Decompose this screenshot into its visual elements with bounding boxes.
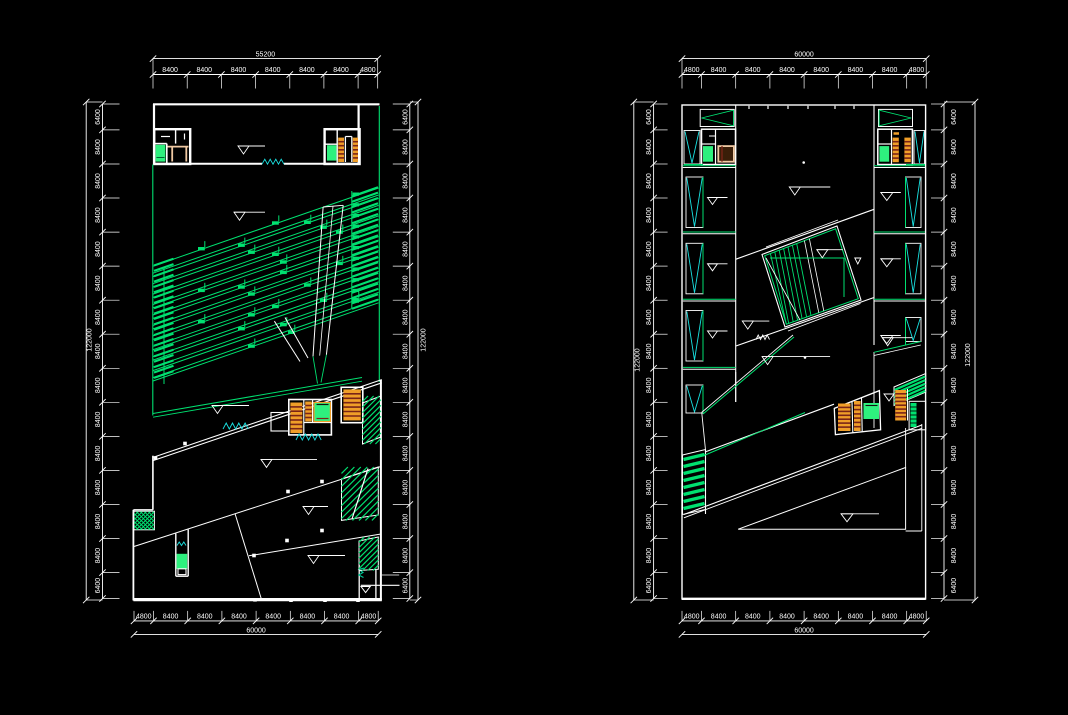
svg-text:6400: 6400 <box>951 578 958 594</box>
svg-text:8400: 8400 <box>848 67 864 74</box>
svg-text:6400: 6400 <box>402 109 409 125</box>
svg-text:8400: 8400 <box>646 514 653 530</box>
svg-text:60000: 60000 <box>794 627 814 634</box>
svg-text:8400: 8400 <box>951 446 958 462</box>
svg-text:8400: 8400 <box>95 412 102 428</box>
svg-text:8400: 8400 <box>951 309 958 325</box>
svg-text:8400: 8400 <box>402 139 409 155</box>
svg-text:8400: 8400 <box>951 480 958 496</box>
svg-text:8400: 8400 <box>95 309 102 325</box>
svg-text:8400: 8400 <box>95 275 102 291</box>
svg-text:8400: 8400 <box>95 207 102 223</box>
svg-text:8400: 8400 <box>402 173 409 189</box>
svg-text:8400: 8400 <box>402 446 409 462</box>
svg-text:8400: 8400 <box>299 67 315 74</box>
svg-text:8400: 8400 <box>163 613 179 620</box>
svg-text:8400: 8400 <box>813 613 829 620</box>
svg-text:8400: 8400 <box>402 309 409 325</box>
svg-text:8400: 8400 <box>402 207 409 223</box>
svg-text:8400: 8400 <box>951 241 958 257</box>
svg-text:8400: 8400 <box>402 241 409 257</box>
svg-text:8400: 8400 <box>162 67 178 74</box>
svg-text:8400: 8400 <box>231 67 247 74</box>
svg-text:8400: 8400 <box>95 548 102 564</box>
svg-text:8400: 8400 <box>711 613 727 620</box>
svg-text:8400: 8400 <box>95 377 102 393</box>
svg-text:8400: 8400 <box>197 613 213 620</box>
svg-text:8400: 8400 <box>402 275 409 291</box>
svg-text:4800: 4800 <box>909 67 925 74</box>
svg-text:8400: 8400 <box>882 613 898 620</box>
svg-text:8400: 8400 <box>95 514 102 530</box>
svg-text:8400: 8400 <box>646 412 653 428</box>
svg-text:8400: 8400 <box>646 139 653 155</box>
svg-text:8400: 8400 <box>95 173 102 189</box>
svg-text:8400: 8400 <box>848 613 864 620</box>
svg-text:8400: 8400 <box>745 67 761 74</box>
svg-text:8400: 8400 <box>95 343 102 359</box>
svg-text:8400: 8400 <box>951 207 958 223</box>
svg-text:8400: 8400 <box>646 480 653 496</box>
svg-text:6400: 6400 <box>95 109 102 125</box>
svg-text:8400: 8400 <box>882 67 898 74</box>
svg-text:8400: 8400 <box>402 514 409 530</box>
svg-text:122000: 122000 <box>965 343 972 366</box>
svg-text:8400: 8400 <box>95 241 102 257</box>
svg-text:4800: 4800 <box>360 67 376 74</box>
svg-text:8400: 8400 <box>745 613 761 620</box>
svg-text:4800: 4800 <box>361 613 377 620</box>
svg-text:8400: 8400 <box>951 139 958 155</box>
svg-text:60000: 60000 <box>794 52 814 59</box>
svg-text:8400: 8400 <box>265 613 281 620</box>
svg-text:8400: 8400 <box>402 412 409 428</box>
svg-text:8400: 8400 <box>402 377 409 393</box>
svg-text:55200: 55200 <box>256 52 276 59</box>
svg-text:8400: 8400 <box>951 412 958 428</box>
svg-text:6400: 6400 <box>402 578 409 594</box>
svg-text:8400: 8400 <box>646 343 653 359</box>
svg-text:8400: 8400 <box>197 67 213 74</box>
svg-text:8400: 8400 <box>779 67 795 74</box>
svg-text:8400: 8400 <box>646 275 653 291</box>
svg-text:4800: 4800 <box>909 613 925 620</box>
svg-text:6400: 6400 <box>646 109 653 125</box>
svg-text:8400: 8400 <box>951 377 958 393</box>
svg-text:8400: 8400 <box>95 480 102 496</box>
svg-text:8400: 8400 <box>402 343 409 359</box>
svg-text:8400: 8400 <box>646 241 653 257</box>
svg-text:8400: 8400 <box>951 548 958 564</box>
svg-text:8400: 8400 <box>646 207 653 223</box>
svg-text:8400: 8400 <box>95 446 102 462</box>
svg-text:4800: 4800 <box>684 613 700 620</box>
svg-text:8400: 8400 <box>231 613 247 620</box>
svg-text:6400: 6400 <box>95 578 102 594</box>
svg-text:122000: 122000 <box>421 328 428 351</box>
svg-text:4800: 4800 <box>684 67 700 74</box>
svg-text:4800: 4800 <box>136 613 152 620</box>
svg-text:8400: 8400 <box>300 613 316 620</box>
svg-text:8400: 8400 <box>646 173 653 189</box>
svg-text:8400: 8400 <box>646 377 653 393</box>
svg-text:8400: 8400 <box>333 67 349 74</box>
svg-text:8400: 8400 <box>951 275 958 291</box>
svg-text:8400: 8400 <box>951 514 958 530</box>
svg-text:60000: 60000 <box>246 627 266 634</box>
svg-text:6400: 6400 <box>951 109 958 125</box>
svg-text:8400: 8400 <box>711 67 727 74</box>
svg-text:8400: 8400 <box>951 173 958 189</box>
svg-text:8400: 8400 <box>95 139 102 155</box>
svg-text:8400: 8400 <box>402 480 409 496</box>
svg-text:8400: 8400 <box>265 67 281 74</box>
svg-text:8400: 8400 <box>779 613 795 620</box>
svg-text:8400: 8400 <box>646 548 653 564</box>
svg-text:8400: 8400 <box>646 446 653 462</box>
svg-text:8400: 8400 <box>402 548 409 564</box>
svg-text:6400: 6400 <box>646 578 653 594</box>
svg-text:8400: 8400 <box>646 309 653 325</box>
svg-text:122000: 122000 <box>87 328 94 351</box>
svg-text:122000: 122000 <box>634 348 641 371</box>
svg-text:8400: 8400 <box>951 343 958 359</box>
svg-text:8400: 8400 <box>813 67 829 74</box>
svg-text:8400: 8400 <box>334 613 350 620</box>
